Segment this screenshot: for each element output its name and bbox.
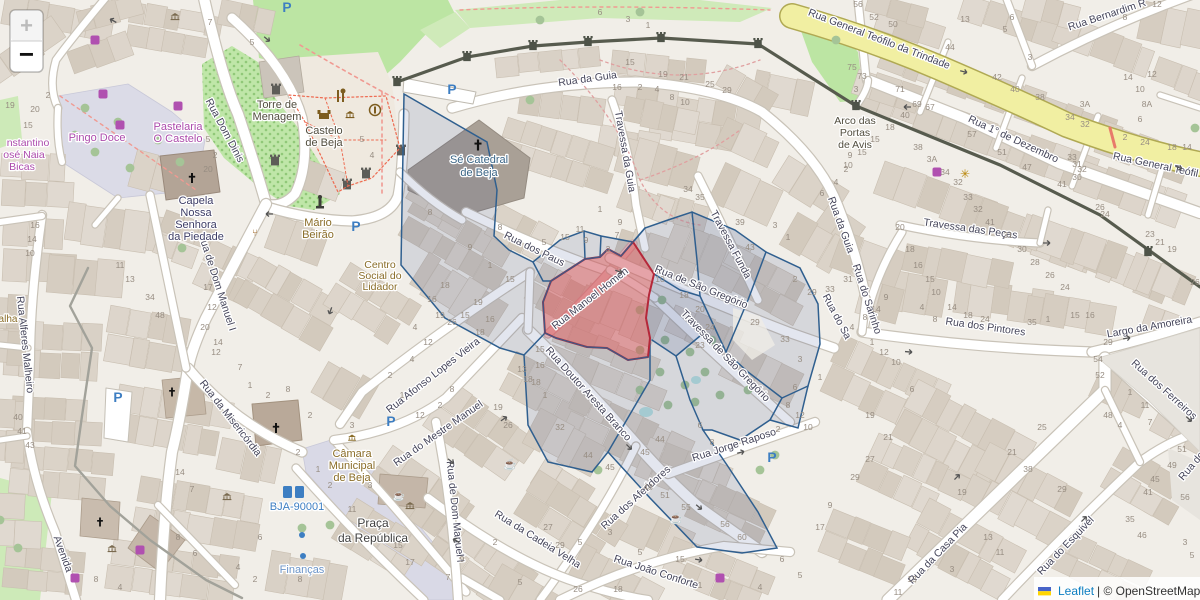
svg-text:BJA-90001: BJA-90001 <box>270 501 324 513</box>
svg-text:10: 10 <box>843 160 853 170</box>
svg-text:26: 26 <box>1190 277 1200 287</box>
svg-text:Beirão: Beirão <box>302 229 334 241</box>
svg-text:5: 5 <box>638 547 643 557</box>
svg-text:10: 10 <box>803 422 813 432</box>
svg-text:Nossa: Nossa <box>180 207 212 219</box>
svg-text:+: + <box>20 13 33 38</box>
svg-text:3A: 3A <box>1080 99 1091 109</box>
svg-text:21: 21 <box>1007 447 1017 457</box>
svg-text:12: 12 <box>207 302 217 312</box>
svg-text:73: 73 <box>857 71 867 81</box>
svg-text:16: 16 <box>913 260 923 270</box>
svg-text:2: 2 <box>253 574 258 584</box>
svg-text:24: 24 <box>1060 282 1070 292</box>
svg-text:5: 5 <box>542 237 547 247</box>
svg-text:30: 30 <box>1017 244 1027 254</box>
svg-text:2: 2 <box>296 447 301 457</box>
svg-text:2: 2 <box>266 390 271 400</box>
svg-text:Portas: Portas <box>840 127 870 139</box>
svg-text:8: 8 <box>933 314 938 324</box>
svg-text:8: 8 <box>298 574 303 584</box>
svg-text:14: 14 <box>175 467 185 477</box>
svg-text:1: 1 <box>543 390 548 400</box>
svg-text:29: 29 <box>555 540 565 550</box>
svg-text:6: 6 <box>1010 12 1015 22</box>
svg-text:41: 41 <box>985 217 995 227</box>
svg-text:8: 8 <box>498 222 503 232</box>
svg-text:21: 21 <box>679 72 689 82</box>
svg-text:17: 17 <box>203 282 213 292</box>
svg-text:25: 25 <box>1037 422 1047 432</box>
svg-text:6: 6 <box>910 384 915 394</box>
svg-text:18: 18 <box>1167 142 1177 152</box>
svg-text:Bicas: Bicas <box>9 161 35 173</box>
svg-text:5: 5 <box>206 134 211 144</box>
svg-text:4: 4 <box>370 150 375 160</box>
svg-text:2: 2 <box>493 537 498 547</box>
svg-text:4: 4 <box>236 562 241 572</box>
svg-text:15: 15 <box>393 540 403 550</box>
svg-text:8: 8 <box>863 312 868 322</box>
svg-text:67: 67 <box>925 102 935 112</box>
svg-text:8: 8 <box>176 532 181 542</box>
svg-text:25: 25 <box>705 79 715 89</box>
svg-text:71: 71 <box>895 84 905 94</box>
svg-text:38: 38 <box>1035 92 1045 102</box>
svg-text:Senhora: Senhora <box>175 219 217 231</box>
svg-text:14: 14 <box>871 304 881 314</box>
svg-text:52: 52 <box>1095 370 1105 380</box>
svg-text:41: 41 <box>1057 179 1067 189</box>
svg-text:| © OpenStreetMap: | © OpenStreetMap <box>1097 584 1200 598</box>
svg-text:☕: ☕ <box>669 511 683 525</box>
svg-text:9: 9 <box>848 150 853 160</box>
svg-text:2: 2 <box>46 90 51 100</box>
svg-text:15: 15 <box>675 554 685 564</box>
svg-text:2: 2 <box>308 410 313 420</box>
svg-text:Sé Catedral: Sé Catedral <box>450 154 508 166</box>
svg-text:6: 6 <box>258 532 263 542</box>
svg-text:Câmara: Câmara <box>332 448 372 460</box>
svg-text:24: 24 <box>980 314 990 324</box>
svg-text:9: 9 <box>468 242 473 252</box>
svg-text:P: P <box>351 219 360 234</box>
svg-text:29: 29 <box>807 287 817 297</box>
svg-text:54: 54 <box>1093 354 1103 364</box>
svg-text:O Castelo: O Castelo <box>154 133 203 145</box>
svg-text:28: 28 <box>1030 257 1040 267</box>
svg-text:19: 19 <box>473 297 483 307</box>
svg-text:da Piedade: da Piedade <box>168 231 224 243</box>
svg-text:nstantino: nstantino <box>7 137 50 149</box>
svg-text:29: 29 <box>722 85 732 95</box>
svg-text:33: 33 <box>963 192 973 202</box>
svg-text:51: 51 <box>997 147 1007 157</box>
svg-text:24: 24 <box>1140 137 1150 147</box>
svg-text:24: 24 <box>705 322 715 332</box>
svg-text:60: 60 <box>737 532 747 542</box>
svg-text:14: 14 <box>1123 72 1133 82</box>
svg-text:18: 18 <box>905 244 915 254</box>
svg-text:23: 23 <box>695 340 705 350</box>
svg-text:3: 3 <box>350 420 355 430</box>
svg-text:8: 8 <box>710 437 715 447</box>
svg-text:1: 1 <box>870 337 875 347</box>
svg-text:43: 43 <box>25 440 35 450</box>
svg-text:7: 7 <box>1148 417 1153 427</box>
svg-text:11: 11 <box>894 587 903 597</box>
svg-text:1: 1 <box>316 464 321 474</box>
svg-text:2: 2 <box>638 82 643 92</box>
svg-text:44: 44 <box>655 434 665 444</box>
svg-text:13: 13 <box>517 364 527 374</box>
svg-text:1: 1 <box>488 260 493 270</box>
svg-text:1: 1 <box>598 204 603 214</box>
svg-text:12: 12 <box>879 347 889 357</box>
svg-text:15: 15 <box>925 274 935 284</box>
svg-text:39: 39 <box>735 217 745 227</box>
svg-text:11: 11 <box>116 260 125 270</box>
svg-text:32: 32 <box>555 422 565 432</box>
svg-text:10: 10 <box>25 248 35 258</box>
svg-text:21: 21 <box>883 432 893 442</box>
svg-text:34: 34 <box>1065 112 1075 122</box>
svg-text:3: 3 <box>773 220 778 230</box>
svg-text:7: 7 <box>446 572 451 582</box>
svg-text:20: 20 <box>200 322 210 332</box>
svg-text:Pingo Doce: Pingo Doce <box>69 132 126 144</box>
svg-text:9: 9 <box>618 217 623 227</box>
svg-text:2: 2 <box>328 480 333 490</box>
svg-text:20: 20 <box>30 104 40 114</box>
svg-text:1: 1 <box>248 380 253 390</box>
svg-text:P: P <box>113 390 122 405</box>
svg-text:34: 34 <box>940 167 950 177</box>
svg-text:46: 46 <box>1137 530 1147 540</box>
svg-text:10: 10 <box>680 97 690 107</box>
svg-text:40: 40 <box>13 412 23 422</box>
svg-text:26: 26 <box>573 584 583 594</box>
svg-text:19: 19 <box>5 100 15 110</box>
svg-text:4: 4 <box>118 582 123 592</box>
svg-text:alha: alha <box>0 314 18 325</box>
svg-text:15: 15 <box>1070 310 1080 320</box>
svg-text:42: 42 <box>992 72 1002 82</box>
svg-text:1: 1 <box>646 20 651 30</box>
svg-text:31: 31 <box>843 274 853 284</box>
svg-text:12: 12 <box>1152 0 1162 9</box>
svg-text:27: 27 <box>865 454 875 464</box>
svg-text:57: 57 <box>967 129 977 139</box>
svg-text:43: 43 <box>745 242 755 252</box>
svg-text:8: 8 <box>1123 12 1128 22</box>
svg-text:☕: ☕ <box>503 457 517 471</box>
svg-text:8: 8 <box>786 400 791 410</box>
svg-text:14: 14 <box>213 337 223 347</box>
svg-text:38: 38 <box>913 142 923 152</box>
svg-text:8: 8 <box>670 92 675 102</box>
svg-text:6: 6 <box>793 382 798 392</box>
svg-text:12: 12 <box>423 337 433 347</box>
svg-text:Mário: Mário <box>304 217 332 229</box>
svg-text:18: 18 <box>963 310 973 320</box>
svg-text:15: 15 <box>625 57 635 67</box>
svg-text:45: 45 <box>640 447 650 457</box>
svg-text:31: 31 <box>1003 230 1013 240</box>
svg-text:Menagem: Menagem <box>253 111 302 123</box>
svg-text:19: 19 <box>1167 244 1177 254</box>
svg-text:35: 35 <box>1125 514 1135 524</box>
svg-text:12: 12 <box>795 410 805 420</box>
svg-text:47: 47 <box>1022 162 1032 172</box>
svg-text:48: 48 <box>155 310 165 320</box>
svg-text:14: 14 <box>27 234 37 244</box>
svg-text:44: 44 <box>945 42 955 52</box>
svg-text:16: 16 <box>535 360 545 370</box>
svg-text:1: 1 <box>1128 387 1133 397</box>
svg-text:7: 7 <box>615 230 620 240</box>
svg-text:P: P <box>282 0 291 15</box>
svg-text:24: 24 <box>1100 209 1110 219</box>
svg-text:15: 15 <box>505 274 515 284</box>
svg-text:1: 1 <box>1046 314 1051 324</box>
svg-text:8A: 8A <box>1142 99 1153 109</box>
svg-text:6: 6 <box>780 554 785 564</box>
svg-text:19: 19 <box>957 487 967 497</box>
svg-text:16: 16 <box>485 314 495 324</box>
svg-text:18: 18 <box>679 290 689 300</box>
svg-text:☕: ☕ <box>393 489 405 502</box>
svg-text:16: 16 <box>612 82 622 92</box>
svg-text:15: 15 <box>560 232 570 242</box>
svg-text:16: 16 <box>427 294 437 304</box>
svg-text:21: 21 <box>1155 237 1165 247</box>
svg-text:1: 1 <box>698 580 703 590</box>
svg-text:45: 45 <box>605 462 615 472</box>
svg-text:26: 26 <box>1045 270 1055 280</box>
svg-text:Pastelaria: Pastelaria <box>154 121 204 133</box>
svg-text:6: 6 <box>193 548 198 558</box>
svg-text:3: 3 <box>950 564 955 574</box>
svg-text:19: 19 <box>658 69 668 79</box>
svg-text:51: 51 <box>1177 444 1187 454</box>
svg-text:1: 1 <box>818 372 823 382</box>
svg-text:3: 3 <box>626 14 631 24</box>
svg-text:15: 15 <box>460 310 470 320</box>
svg-text:Lidador: Lidador <box>362 281 398 293</box>
svg-text:14: 14 <box>1182 142 1192 152</box>
svg-text:3: 3 <box>606 244 611 254</box>
svg-text:8: 8 <box>428 207 433 217</box>
svg-text:20: 20 <box>695 304 705 314</box>
svg-text:48: 48 <box>643 482 653 492</box>
svg-text:3: 3 <box>798 354 803 364</box>
svg-text:30: 30 <box>1072 172 1082 182</box>
svg-text:15: 15 <box>870 134 880 144</box>
svg-text:75: 75 <box>847 62 857 72</box>
svg-text:18: 18 <box>475 327 485 337</box>
svg-text:19: 19 <box>865 410 875 420</box>
svg-text:19: 19 <box>435 310 445 320</box>
svg-text:12: 12 <box>211 347 221 357</box>
svg-text:3: 3 <box>368 480 373 490</box>
svg-text:23: 23 <box>1145 229 1155 239</box>
svg-text:P: P <box>386 414 395 429</box>
svg-text:10: 10 <box>931 287 941 297</box>
svg-text:69: 69 <box>912 99 922 109</box>
svg-text:33: 33 <box>780 334 790 344</box>
svg-text:13: 13 <box>983 532 993 542</box>
svg-text:de Beja: de Beja <box>333 472 371 484</box>
svg-text:9: 9 <box>584 235 589 245</box>
svg-text:52: 52 <box>869 12 879 22</box>
svg-text:16: 16 <box>1085 310 1095 320</box>
svg-text:4: 4 <box>1118 420 1123 430</box>
svg-text:6: 6 <box>820 188 825 198</box>
svg-text:9: 9 <box>460 554 465 564</box>
svg-text:⑂: ⑂ <box>252 228 258 239</box>
svg-text:18: 18 <box>440 280 450 290</box>
svg-text:44: 44 <box>583 450 593 460</box>
svg-text:40: 40 <box>1010 84 1020 94</box>
svg-text:de Avis: de Avis <box>838 139 872 151</box>
svg-text:49: 49 <box>1167 460 1177 470</box>
svg-text:5: 5 <box>518 577 523 587</box>
svg-text:4: 4 <box>413 322 418 332</box>
svg-text:32: 32 <box>1080 119 1090 129</box>
svg-text:19: 19 <box>493 402 503 412</box>
svg-text:7: 7 <box>208 17 213 27</box>
svg-text:15: 15 <box>535 344 545 354</box>
svg-text:Leaflet: Leaflet <box>1058 584 1095 598</box>
svg-text:56: 56 <box>720 519 730 529</box>
svg-text:7: 7 <box>190 484 195 494</box>
svg-text:29: 29 <box>850 472 860 482</box>
svg-text:osé Naia: osé Naia <box>3 149 45 161</box>
svg-text:18: 18 <box>885 122 895 132</box>
svg-text:1: 1 <box>786 232 791 242</box>
svg-text:20: 20 <box>203 164 213 174</box>
svg-text:41: 41 <box>1143 487 1153 497</box>
svg-text:32: 32 <box>953 177 963 187</box>
svg-text:56: 56 <box>853 0 863 9</box>
svg-text:8: 8 <box>94 574 99 584</box>
svg-text:11: 11 <box>996 547 1005 557</box>
svg-text:45: 45 <box>1150 474 1160 484</box>
svg-text:29: 29 <box>1057 484 1067 494</box>
svg-text:17: 17 <box>815 522 825 532</box>
svg-text:Castelo: Castelo <box>305 125 342 137</box>
svg-text:3: 3 <box>1028 52 1033 62</box>
svg-text:4: 4 <box>410 354 415 364</box>
svg-text:2: 2 <box>776 424 781 434</box>
svg-text:13: 13 <box>907 574 917 584</box>
svg-text:2: 2 <box>793 274 798 284</box>
svg-text:de Beja: de Beja <box>460 167 498 179</box>
svg-text:12: 12 <box>415 410 425 420</box>
svg-text:26: 26 <box>503 420 513 430</box>
svg-text:3: 3 <box>608 527 613 537</box>
svg-text:35: 35 <box>1027 317 1037 327</box>
svg-text:de Beja: de Beja <box>305 137 343 149</box>
svg-text:32: 32 <box>973 204 983 214</box>
svg-text:27: 27 <box>543 522 553 532</box>
svg-text:6: 6 <box>1138 114 1143 124</box>
svg-text:38: 38 <box>1023 464 1033 474</box>
svg-text:18: 18 <box>613 584 623 594</box>
svg-text:55: 55 <box>681 502 691 512</box>
svg-text:9: 9 <box>828 500 833 510</box>
svg-text:11: 11 <box>1141 400 1150 410</box>
svg-text:2: 2 <box>1123 132 1128 142</box>
svg-text:8: 8 <box>286 384 291 394</box>
svg-text:3: 3 <box>854 84 859 94</box>
svg-text:3A: 3A <box>927 154 938 164</box>
svg-text:−: − <box>19 39 34 69</box>
svg-text:12: 12 <box>1147 69 1157 79</box>
svg-text:6: 6 <box>698 420 703 430</box>
svg-text:35: 35 <box>695 192 705 202</box>
svg-text:17: 17 <box>405 557 415 567</box>
svg-text:4: 4 <box>920 302 925 312</box>
svg-text:5: 5 <box>360 134 365 144</box>
svg-text:4: 4 <box>655 84 660 94</box>
svg-text:5: 5 <box>1003 24 1008 34</box>
svg-text:13: 13 <box>125 274 135 284</box>
svg-text:11: 11 <box>576 224 585 234</box>
svg-text:4: 4 <box>834 177 839 187</box>
svg-text:16: 16 <box>30 220 40 230</box>
svg-text:7: 7 <box>238 362 243 372</box>
svg-text:Capela: Capela <box>179 195 215 207</box>
svg-text:10: 10 <box>655 274 665 284</box>
svg-text:48: 48 <box>1103 410 1113 420</box>
svg-text:40: 40 <box>900 110 910 120</box>
svg-text:14: 14 <box>947 302 957 312</box>
svg-text:5: 5 <box>1190 550 1195 560</box>
svg-text:4: 4 <box>850 322 855 332</box>
svg-text:P: P <box>767 450 776 465</box>
svg-text:4: 4 <box>758 582 763 592</box>
svg-text:1: 1 <box>400 390 405 400</box>
svg-text:5: 5 <box>250 37 255 47</box>
svg-text:26: 26 <box>447 317 457 327</box>
svg-text:2: 2 <box>388 370 393 380</box>
svg-text:15: 15 <box>857 147 867 157</box>
svg-text:9: 9 <box>884 292 889 302</box>
svg-text:10: 10 <box>1135 84 1145 94</box>
svg-text:Municipal: Municipal <box>329 460 375 472</box>
svg-text:33: 33 <box>825 284 835 294</box>
svg-text:34: 34 <box>145 292 155 302</box>
svg-text:Torre de: Torre de <box>257 99 297 111</box>
svg-text:11: 11 <box>348 504 357 514</box>
svg-text:2: 2 <box>438 400 443 410</box>
svg-text:29: 29 <box>750 317 760 327</box>
svg-text:2: 2 <box>213 150 218 160</box>
svg-text:6: 6 <box>598 7 603 17</box>
svg-text:Praça: Praça <box>357 516 389 530</box>
svg-text:15: 15 <box>23 120 33 130</box>
svg-text:51: 51 <box>660 490 670 500</box>
svg-text:50: 50 <box>888 19 898 29</box>
svg-text:34: 34 <box>683 184 693 194</box>
svg-text:18: 18 <box>523 374 533 384</box>
svg-text:8: 8 <box>450 384 455 394</box>
svg-text:5: 5 <box>798 570 803 580</box>
svg-text:13: 13 <box>960 14 970 24</box>
svg-text:3: 3 <box>1183 537 1188 547</box>
